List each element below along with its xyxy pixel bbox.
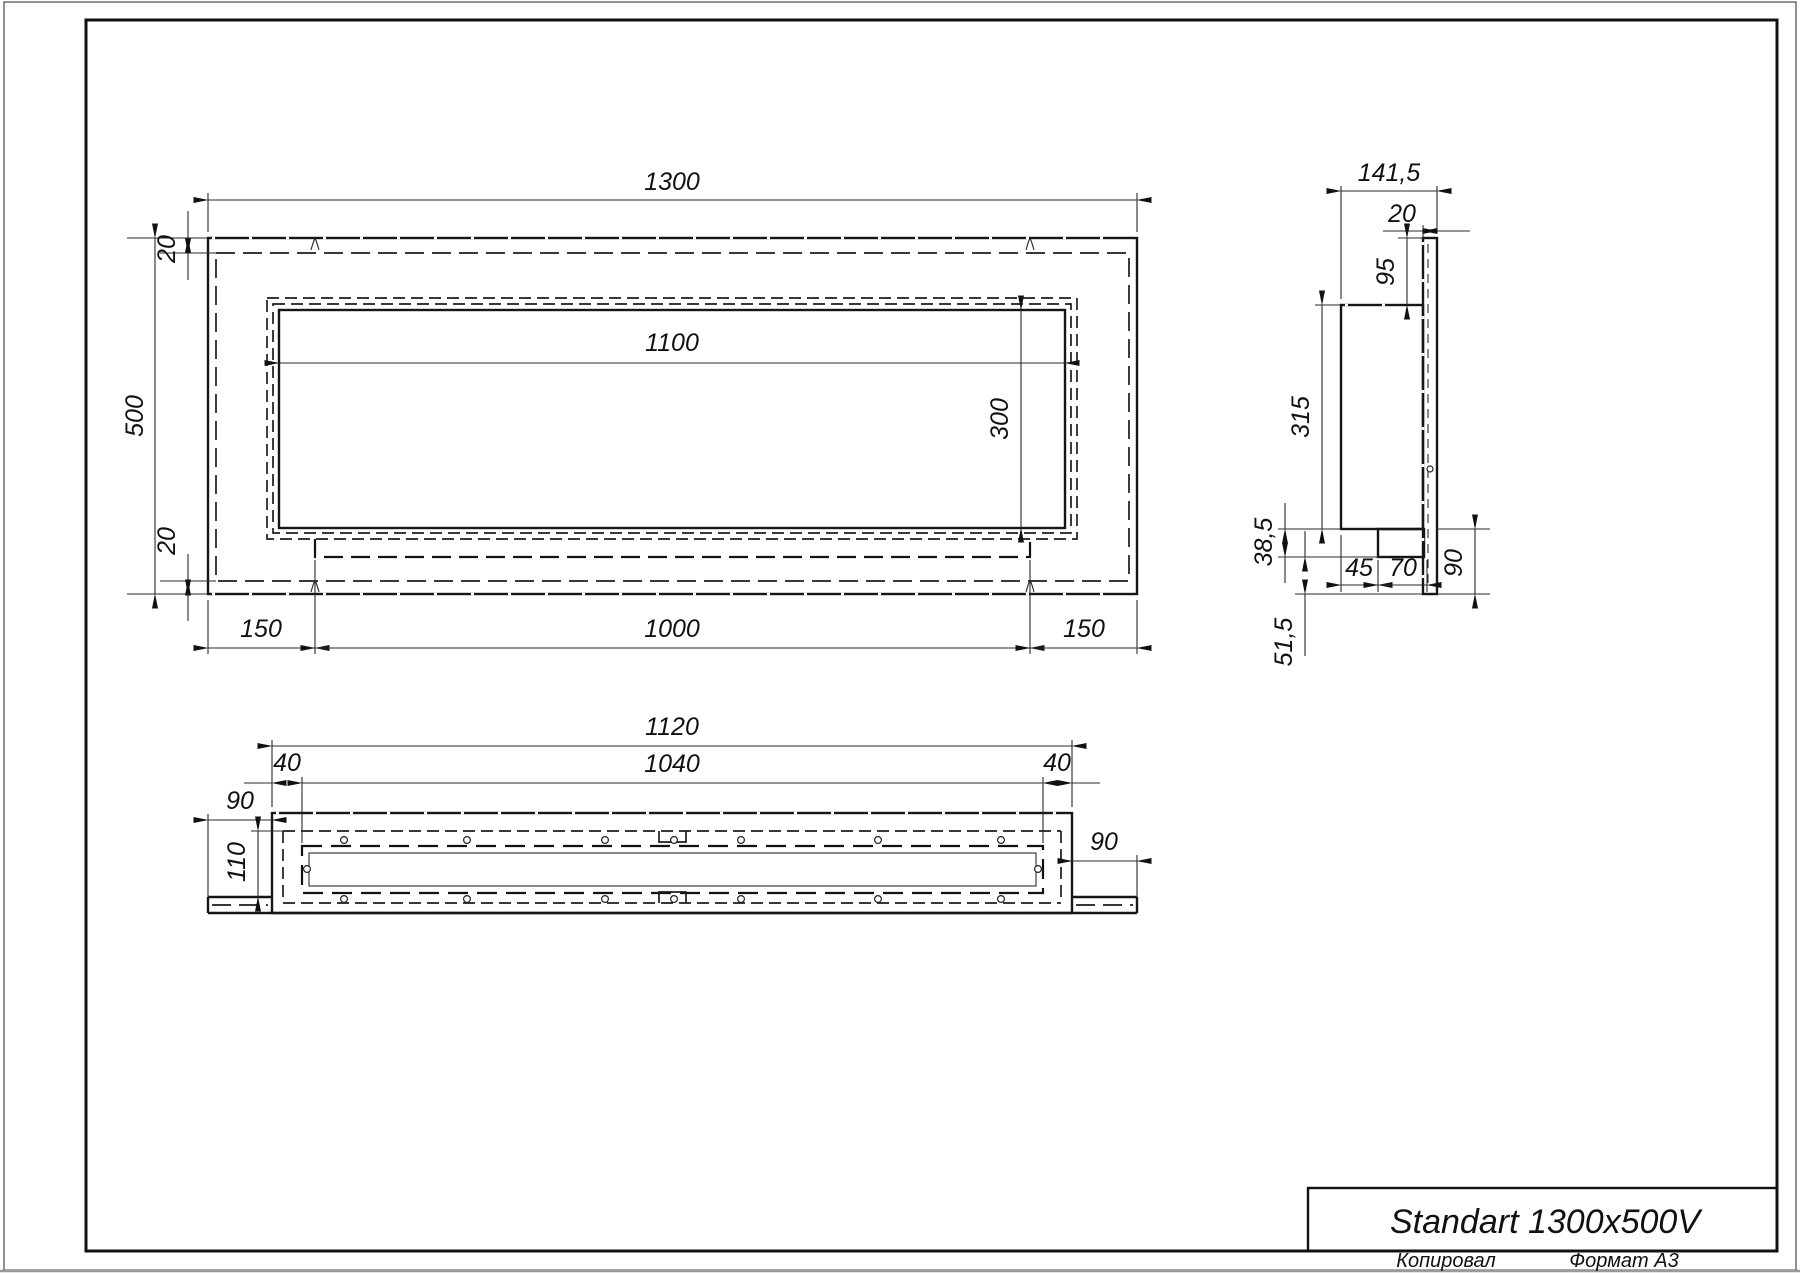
front-hanger-hooks	[311, 239, 1034, 592]
bottom-view-dimensions: 1120 1040 40 40 90 110 90	[208, 713, 1137, 897]
copied-label: Копировал	[1396, 1250, 1495, 1272]
bottom-view: 1120 1040 40 40 90 110 90	[208, 713, 1137, 913]
dim-side-bottom-drop: 51,5	[1270, 618, 1298, 667]
dim-side-tray-depth: 70	[1389, 554, 1417, 582]
dim-front-bottom-inset: 20	[153, 527, 181, 556]
format-label: Формат А3	[1569, 1250, 1678, 1272]
dim-side-top-offset: 95	[1372, 258, 1400, 286]
product-title: Standart 1300x500V	[1390, 1203, 1703, 1241]
dim-side-inset: 45	[1345, 554, 1373, 582]
dim-front-burner-length: 1000	[644, 615, 700, 643]
dim-bottom-body-depth: 110	[223, 842, 251, 882]
front-view: 1300 500 20 20 1100 300 150 1000 150	[121, 168, 1137, 654]
dim-front-opening-width: 1100	[645, 329, 699, 357]
side-view-dimensions: 141,5 20 95 315 38,5 51,5 45 70 90	[1250, 159, 1475, 666]
drawing-sheet: Standart 1300x500V Копировал Формат А3	[0, 0, 1800, 1273]
dim-side-panel-thickness: 20	[1387, 200, 1416, 228]
panel-hole-icon	[1427, 466, 1433, 472]
dim-bottom-body-length: 1120	[645, 713, 699, 741]
dim-side-step-height: 38,5	[1250, 518, 1278, 567]
front-burner-tray-hidden	[315, 539, 1030, 557]
hook-icon	[1026, 239, 1034, 250]
side-view: 141,5 20 95 315 38,5 51,5 45 70 90	[1250, 159, 1490, 666]
dim-side-body-height: 315	[1287, 396, 1315, 438]
dim-front-top-inset: 20	[153, 235, 181, 264]
technical-drawing-canvas: Standart 1300x500V Копировал Формат А3	[0, 0, 1800, 1273]
dim-bottom-right-flange: 90	[1090, 828, 1118, 856]
side-view-outlines	[1341, 238, 1437, 594]
dim-side-flange-height: 90	[1440, 549, 1468, 577]
dim-bottom-left-flange: 90	[226, 787, 254, 815]
dim-front-opening-height: 300	[986, 398, 1014, 440]
bottom-opening-inner	[309, 853, 1036, 886]
dim-front-total-height: 500	[121, 395, 149, 437]
sheet-inner-frame	[86, 20, 1777, 1251]
dim-front-left-margin: 150	[240, 615, 282, 643]
side-burner-tray	[1378, 529, 1424, 557]
hook-icon	[311, 239, 319, 250]
dim-bottom-opening-length: 1040	[644, 750, 700, 778]
dim-front-right-margin: 150	[1063, 615, 1105, 643]
side-body	[1341, 305, 1423, 529]
dim-bottom-right-inset: 40	[1043, 749, 1071, 777]
dim-bottom-left-inset: 40	[273, 749, 301, 777]
dim-front-total-width: 1300	[644, 168, 700, 196]
side-view-extension-lines	[1278, 186, 1490, 594]
title-block: Standart 1300x500V Копировал Формат А3	[1308, 1188, 1777, 1272]
dim-side-total-depth: 141,5	[1358, 159, 1421, 187]
